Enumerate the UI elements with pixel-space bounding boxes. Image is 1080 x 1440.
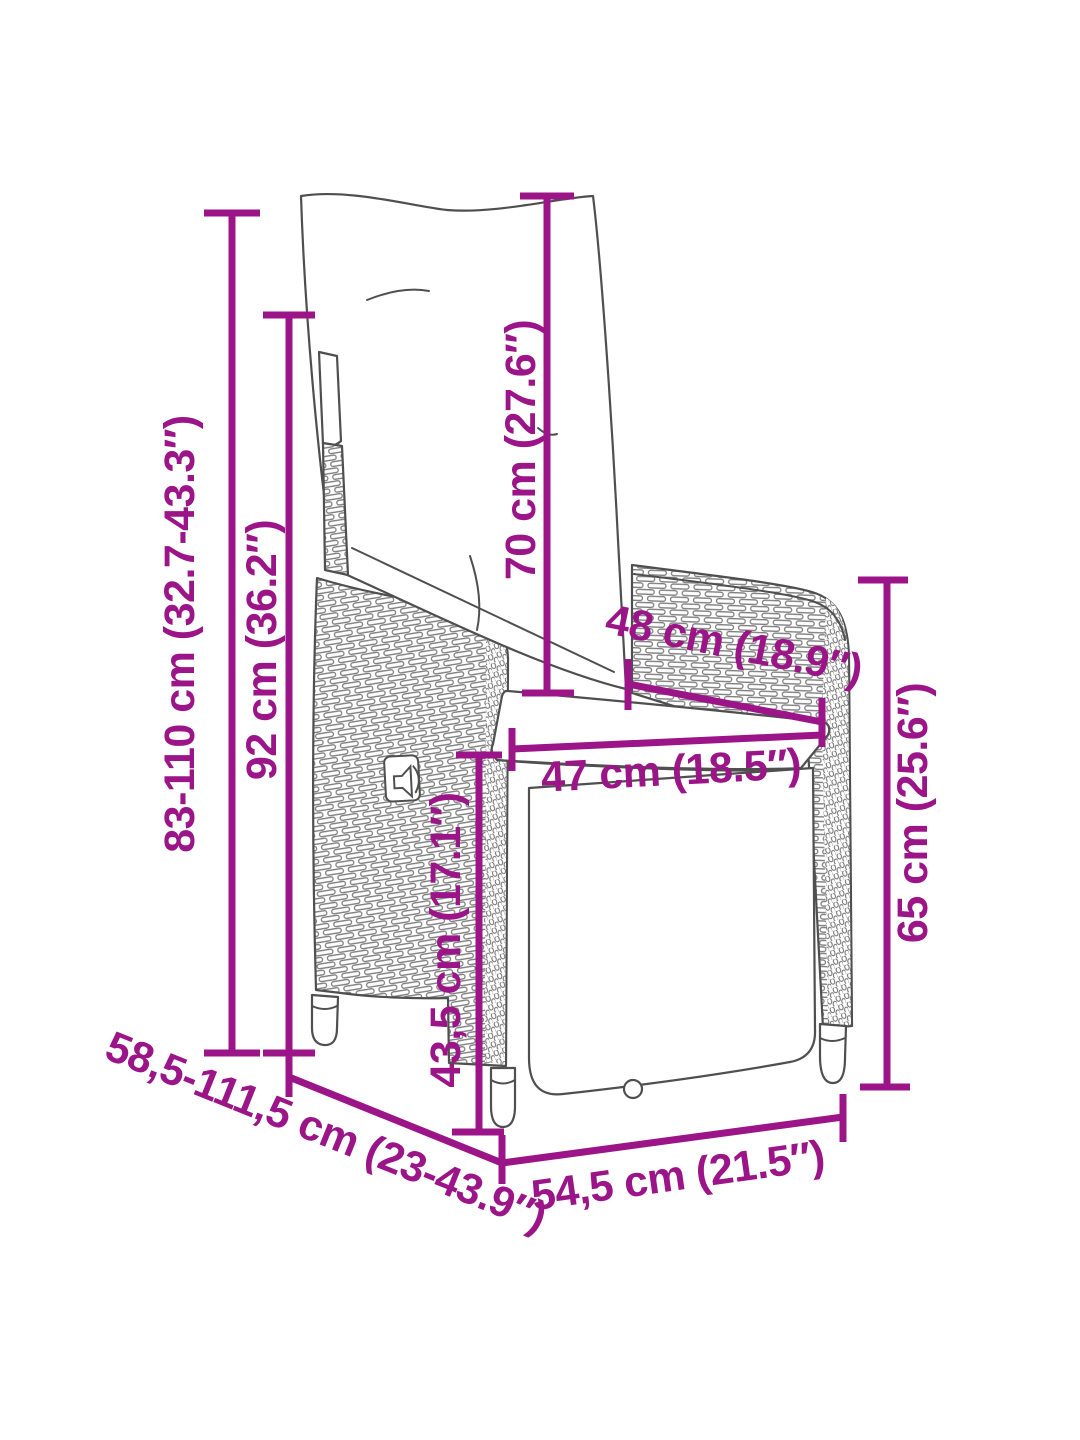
chair-front-panel [529, 768, 815, 1094]
chair-foot-rear-left [312, 995, 338, 1045]
dimension-label: 92 cm (36.2″) [238, 520, 286, 780]
chair-foot-rear-right [820, 1024, 846, 1083]
diagram-canvas: 83-110 cm (32.7-43.3″) 92 cm (36.2″) 70 … [0, 0, 1080, 1440]
dimension-backrest-height: 92 cm (36.2″) [238, 315, 315, 1097]
dimension-label: 65 cm (25.6″) [889, 683, 937, 943]
dimension-label: 43,5 cm (17.1″) [422, 792, 470, 1087]
dimension-label: 54,5 cm (21.5″) [529, 1132, 828, 1221]
dimension-diagram: 83-110 cm (32.7-43.3″) 92 cm (36.2″) 70 … [0, 0, 1080, 1440]
chair-front-roller [624, 1080, 642, 1098]
dimension-label: 70 cm (27.6″) [497, 320, 545, 580]
chair-backrest-edge-texture [485, 622, 507, 1064]
dimension-label: 83-110 cm (32.7-43.3″) [156, 415, 204, 853]
dimension-base-depth: 54,5 cm (21.5″) [502, 1094, 843, 1220]
dimension-armrest-height: 65 cm (25.6″) [858, 580, 937, 1087]
chair-foot-front-left [491, 1068, 515, 1127]
recline-adjuster-detail [384, 755, 420, 802]
